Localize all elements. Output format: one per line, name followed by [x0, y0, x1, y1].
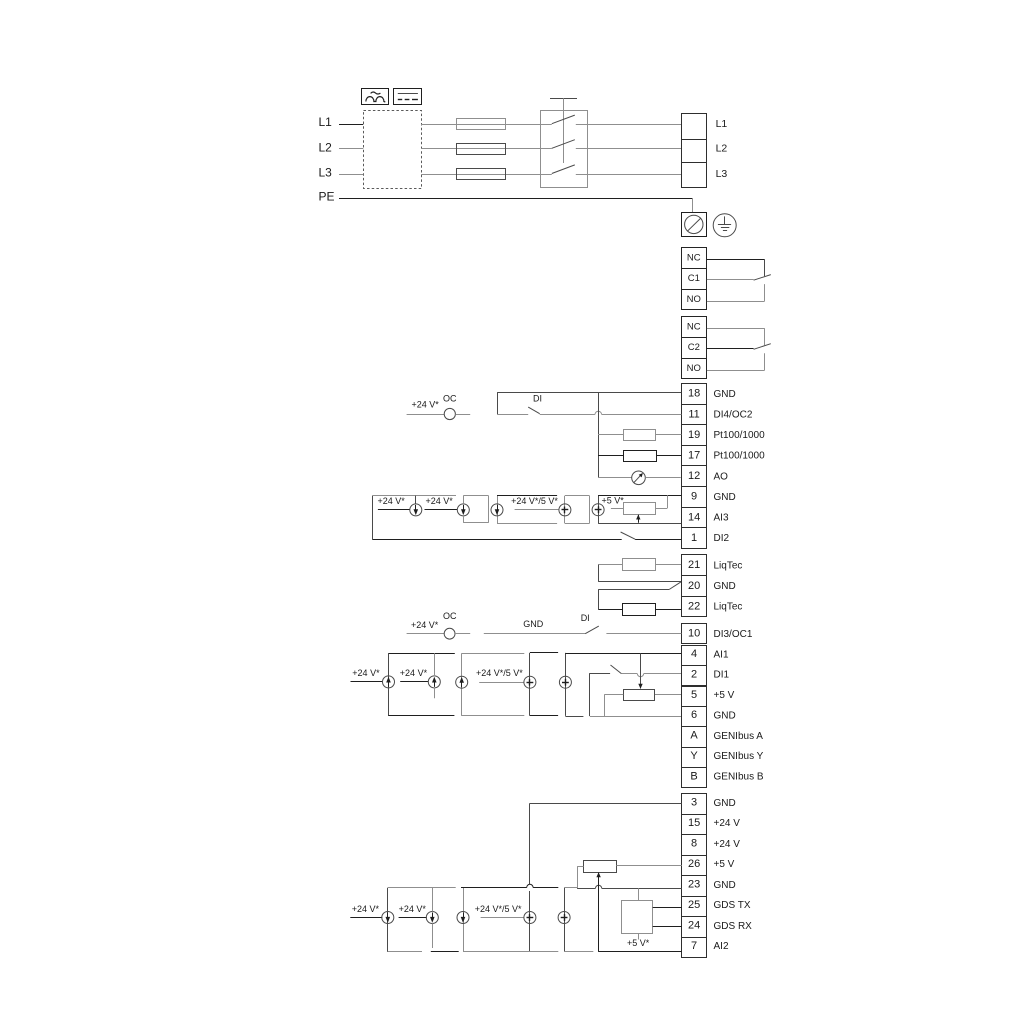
svg-text:6: 6 [691, 709, 697, 721]
svg-text:L3: L3 [319, 166, 333, 180]
svg-text:+24 V*: +24 V* [412, 399, 440, 409]
svg-text:NO: NO [687, 294, 701, 305]
svg-text:Y: Y [690, 750, 698, 762]
svg-text:25: 25 [688, 899, 700, 911]
svg-text:9: 9 [691, 491, 697, 503]
svg-text:14: 14 [688, 511, 700, 523]
svg-text:AI2: AI2 [714, 941, 729, 952]
svg-text:PE: PE [319, 190, 335, 204]
svg-text:23: 23 [688, 879, 700, 891]
svg-text:+24 V*: +24 V* [411, 620, 439, 630]
svg-text:LiqTec: LiqTec [714, 560, 743, 571]
svg-text:18: 18 [688, 388, 700, 400]
svg-text:+24 V*: +24 V* [352, 668, 380, 678]
svg-text:AI1: AI1 [714, 649, 729, 660]
svg-text:+24 V*: +24 V* [400, 668, 428, 678]
svg-text:+24 V*/5 V*: +24 V*/5 V* [511, 496, 558, 506]
svg-text:26: 26 [688, 858, 700, 870]
svg-text:L3: L3 [716, 168, 728, 180]
svg-text:+24 V: +24 V [714, 818, 741, 829]
svg-text:GND: GND [714, 389, 736, 400]
svg-text:+24 V*: +24 V* [352, 904, 380, 914]
svg-text:GND: GND [714, 798, 736, 809]
svg-text:DI3/OC1: DI3/OC1 [714, 629, 753, 640]
svg-text:C1: C1 [688, 273, 700, 284]
svg-text:+24 V*: +24 V* [378, 496, 406, 506]
svg-text:19: 19 [688, 429, 700, 441]
svg-text:DI4/OC2: DI4/OC2 [714, 410, 753, 421]
svg-text:L1: L1 [319, 115, 333, 129]
svg-text:10: 10 [688, 628, 700, 640]
svg-text:L2: L2 [716, 142, 728, 154]
svg-text:GENIbus Y: GENIbus Y [714, 751, 764, 762]
svg-text:+24 V*/5 V*: +24 V*/5 V* [476, 668, 523, 678]
svg-text:22: 22 [688, 601, 700, 613]
svg-text:DI: DI [533, 394, 542, 404]
svg-text:+5 V*: +5 V* [627, 938, 650, 948]
svg-text:GDS RX: GDS RX [714, 921, 753, 932]
svg-text:DI2: DI2 [714, 533, 730, 544]
svg-text:AI3: AI3 [714, 513, 729, 524]
svg-text:12: 12 [688, 470, 700, 482]
svg-text:17: 17 [688, 450, 700, 462]
svg-text:LiqTec: LiqTec [714, 602, 743, 613]
svg-text:L2: L2 [319, 141, 333, 155]
svg-text:Pt100/1000: Pt100/1000 [714, 451, 766, 462]
svg-text:NC: NC [687, 322, 701, 333]
svg-text:C2: C2 [688, 342, 700, 353]
svg-text:+5 V: +5 V [714, 859, 735, 870]
svg-text:GND: GND [714, 581, 736, 592]
svg-text:DI: DI [581, 613, 590, 623]
svg-text:15: 15 [688, 817, 700, 829]
svg-text:+24 V*: +24 V* [426, 496, 454, 506]
svg-text:+24 V*: +24 V* [399, 904, 427, 914]
svg-text:L1: L1 [716, 118, 728, 130]
svg-text:GND: GND [523, 619, 544, 629]
svg-text:B: B [690, 770, 697, 782]
svg-text:GDS TX: GDS TX [714, 900, 751, 911]
svg-text:+5 V: +5 V [714, 690, 735, 701]
svg-text:24: 24 [688, 920, 700, 932]
svg-text:Pt100/1000: Pt100/1000 [714, 430, 766, 441]
svg-text:DI1: DI1 [714, 670, 730, 681]
svg-text:GND: GND [714, 492, 736, 503]
svg-text:5: 5 [691, 689, 697, 701]
svg-text:21: 21 [688, 559, 700, 571]
svg-text:OC: OC [443, 611, 457, 621]
svg-text:3: 3 [691, 797, 697, 809]
svg-text:+24 V*/5 V*: +24 V*/5 V* [475, 904, 522, 914]
svg-text:NC: NC [687, 252, 701, 263]
svg-text:+5 V*: +5 V* [602, 496, 625, 506]
svg-text:+24 V: +24 V [714, 839, 741, 850]
svg-text:GND: GND [714, 710, 736, 721]
svg-text:GND: GND [714, 880, 736, 891]
svg-text:8: 8 [691, 838, 697, 850]
svg-text:4: 4 [691, 648, 697, 660]
svg-text:7: 7 [691, 940, 697, 952]
svg-text:GENIbus A: GENIbus A [714, 731, 764, 742]
svg-text:1: 1 [691, 532, 697, 544]
svg-text:OC: OC [443, 394, 457, 404]
svg-text:20: 20 [688, 580, 700, 592]
svg-text:A: A [690, 730, 698, 742]
svg-text:2: 2 [691, 669, 697, 681]
svg-text:NO: NO [687, 363, 701, 374]
svg-text:11: 11 [688, 408, 699, 420]
svg-text:GENIbus B: GENIbus B [714, 772, 764, 783]
svg-text:AO: AO [714, 471, 729, 482]
